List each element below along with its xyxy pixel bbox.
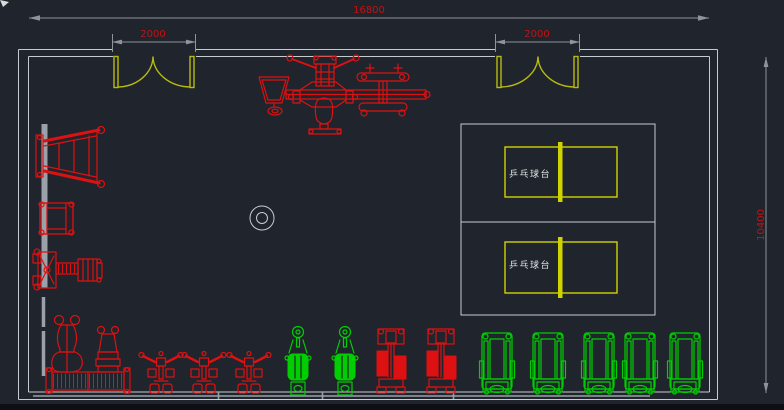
column-icon: [250, 206, 274, 230]
pingpong-table-label: 乒乓球台: [502, 170, 558, 181]
weight-stack-machine-icon: [427, 329, 456, 393]
weight-stack-machine-icon: [377, 329, 406, 393]
floor-plan-drawing: [0, 0, 784, 410]
dim-arrow: [495, 40, 505, 45]
cable-station-icon: [182, 352, 226, 394]
dim-arrow: [764, 383, 769, 393]
dim-text-total-height: 10400: [756, 203, 768, 247]
treadmill-icon: [623, 333, 658, 394]
red-equipment: [33, 55, 456, 394]
dim-arrow: [698, 15, 709, 20]
double-door-icon: [114, 57, 194, 88]
treadmill-icon: [531, 333, 566, 394]
exercise-bike-icon: [332, 327, 358, 396]
dim-text-door-right: 2000: [515, 29, 559, 41]
pingpong-table-label: 乒乓球台: [502, 261, 558, 272]
treadmill-icon: [582, 333, 617, 394]
exercise-bike-icon: [285, 327, 311, 396]
entrance-doors: [114, 57, 578, 88]
dim-arrow: [570, 40, 580, 45]
adjustable-bench-icon: [52, 316, 83, 373]
dim-text-door-left: 2000: [131, 29, 175, 41]
cable-station-icon: [227, 352, 271, 394]
dimension-lines: [29, 15, 768, 393]
dim-text-total-width: 16800: [347, 5, 391, 17]
dim-arrow: [764, 57, 769, 67]
cursor-artifact: [0, 0, 9, 7]
double-door-icon: [497, 57, 578, 88]
cable-station-icon: [139, 352, 183, 394]
adjustable-bench-icon: [96, 327, 120, 373]
treadmill-icon: [480, 333, 515, 394]
room-walls: [19, 50, 718, 400]
bottom-edge-strip: [0, 404, 784, 410]
dim-arrow: [186, 40, 196, 45]
multi-station-gym-icon: [259, 55, 430, 134]
treadmill-icon: [668, 333, 703, 394]
pingpong-area: [461, 124, 655, 315]
barbell-rack-icon: [46, 368, 130, 394]
dim-arrow: [112, 40, 122, 45]
dim-arrow: [29, 15, 40, 20]
cad-canvas[interactable]: 16800 2000 2000 10400 乒乓球台 乒乓球台: [0, 0, 784, 410]
green-equipment: [285, 327, 703, 396]
